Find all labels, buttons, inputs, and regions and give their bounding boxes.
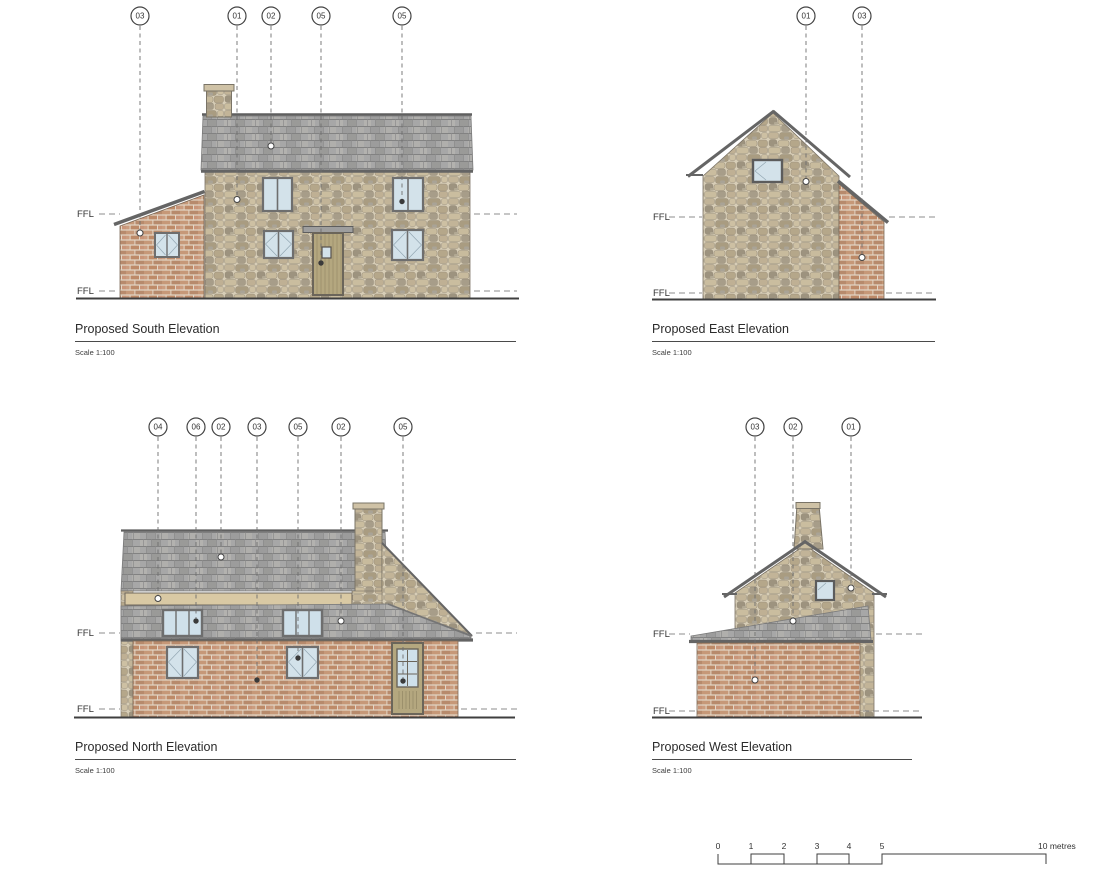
south-title: Proposed South Elevation: [75, 322, 220, 336]
west-scale-label: Scale 1:100: [652, 766, 692, 775]
ffl-label: FFL: [653, 288, 670, 299]
south-elevation-drawing: FFL FFL 03 01 02 05: [75, 7, 519, 357]
elevations-drawing: FFL FFL 03 01 02 05: [0, 0, 1117, 872]
door-canopy: [303, 227, 353, 233]
marker-end: [268, 143, 274, 149]
east-title: Proposed East Elevation: [652, 322, 789, 336]
south-scale-label: Scale 1:100: [75, 348, 115, 357]
marker-end: [803, 179, 809, 185]
south-window-upper-right: [393, 178, 423, 211]
chimney-cap: [204, 85, 234, 92]
marker-end: [254, 677, 259, 682]
marker-label: 01: [802, 12, 811, 21]
east-gable-wall: [703, 113, 839, 299]
door-vision-panel: [322, 247, 331, 258]
south-window-lower-left: [264, 231, 293, 258]
marker-end: [399, 199, 404, 204]
scale-tick-label: 4: [847, 841, 852, 851]
scale-tick-label: 1: [749, 841, 754, 851]
scale-bar-line: [718, 854, 1046, 864]
marker-end: [218, 554, 224, 560]
west-chimney: [794, 503, 823, 550]
marker-end: [790, 618, 796, 624]
north-rooflight-right: [283, 610, 322, 636]
marker-label: 05: [294, 423, 303, 432]
roof-face: [121, 532, 388, 591]
south-window-lower-right: [392, 230, 423, 260]
south-window-upper-left: [263, 178, 292, 211]
west-elevation-drawing: FFL FFL 03 02 01 Proposed West Elevation: [652, 418, 922, 775]
west-gable-window: [816, 581, 834, 600]
marker-label: 03: [858, 12, 867, 21]
marker-end: [193, 618, 198, 623]
north-glazed-door: [392, 643, 423, 714]
south-lean-to-window: [155, 233, 179, 257]
ffl-label: FFL: [653, 629, 670, 640]
scale-tick-label: 2: [782, 841, 787, 851]
marker-label: 05: [317, 12, 326, 21]
marker-label: 02: [789, 423, 798, 432]
marker-label: 04: [154, 423, 163, 432]
north-chimney: [353, 503, 384, 592]
scale-tick-label: 3: [815, 841, 820, 851]
ffl-label: FFL: [77, 704, 94, 715]
marker-end: [155, 596, 161, 602]
marker-label: 06: [192, 423, 201, 432]
north-window-right: [287, 647, 318, 678]
marker-label: 02: [267, 12, 276, 21]
marker-label: 05: [399, 423, 408, 432]
marker-label: 03: [136, 12, 145, 21]
north-scale-label: Scale 1:100: [75, 766, 115, 775]
marker-label: 01: [847, 423, 856, 432]
ffl-label: FFL: [653, 212, 670, 223]
marker-label: 03: [253, 423, 262, 432]
section-marker-03: 03: [131, 7, 149, 236]
north-main-roof: [121, 531, 388, 592]
marker-end: [859, 255, 865, 261]
east-gable-window: [753, 160, 782, 182]
south-lean-to: [114, 192, 205, 299]
marker-label: 05: [398, 12, 407, 21]
north-window-left: [167, 647, 198, 678]
door-leaf: [313, 233, 343, 295]
drawing-sheet: FFL FFL 03 01 02 05: [0, 0, 1117, 872]
marker-end: [137, 230, 143, 236]
marker-label: 02: [217, 423, 226, 432]
north-elevation-drawing: FFL FFL 04 06 02 03: [74, 418, 517, 775]
ffl-label: FFL: [77, 628, 94, 639]
marker-label: 02: [337, 423, 346, 432]
chimney-cap: [353, 503, 384, 509]
marker-end: [295, 655, 300, 660]
east-elevation-drawing: FFL FFL 01 03 Proposed East Elevation Sc…: [652, 7, 936, 357]
marker-end-door-knob: [400, 678, 405, 683]
scale-tick-label: 5: [880, 841, 885, 851]
ffl-label: FFL: [653, 706, 670, 717]
ffl-label: FFL: [77, 209, 94, 220]
south-roof: [201, 115, 473, 172]
ffl-label: FFL: [77, 286, 94, 297]
scale-tick-label: 0: [716, 841, 721, 851]
marker-label: 03: [751, 423, 760, 432]
south-chimney: [204, 85, 234, 118]
marker-end: [752, 677, 758, 683]
marker-end: [848, 585, 854, 591]
roof-face: [201, 116, 473, 170]
east-scale-label: Scale 1:100: [652, 348, 692, 357]
west-title: Proposed West Elevation: [652, 740, 792, 754]
section-marker-01: 01: [842, 418, 860, 591]
marker-label: 01: [233, 12, 242, 21]
marker-end: [234, 197, 240, 203]
north-title: Proposed North Elevation: [75, 740, 217, 754]
marker-end: [338, 618, 344, 624]
scale-bar: 0 1 2 3 4 5 10 metres: [716, 841, 1076, 864]
east-lean-to: [838, 181, 888, 299]
west-brick-wall: [697, 643, 860, 717]
marker-end-door-knob: [318, 260, 323, 265]
scale-bar-end-label: 10 metres: [1038, 841, 1076, 851]
chimney-cap: [796, 503, 820, 509]
